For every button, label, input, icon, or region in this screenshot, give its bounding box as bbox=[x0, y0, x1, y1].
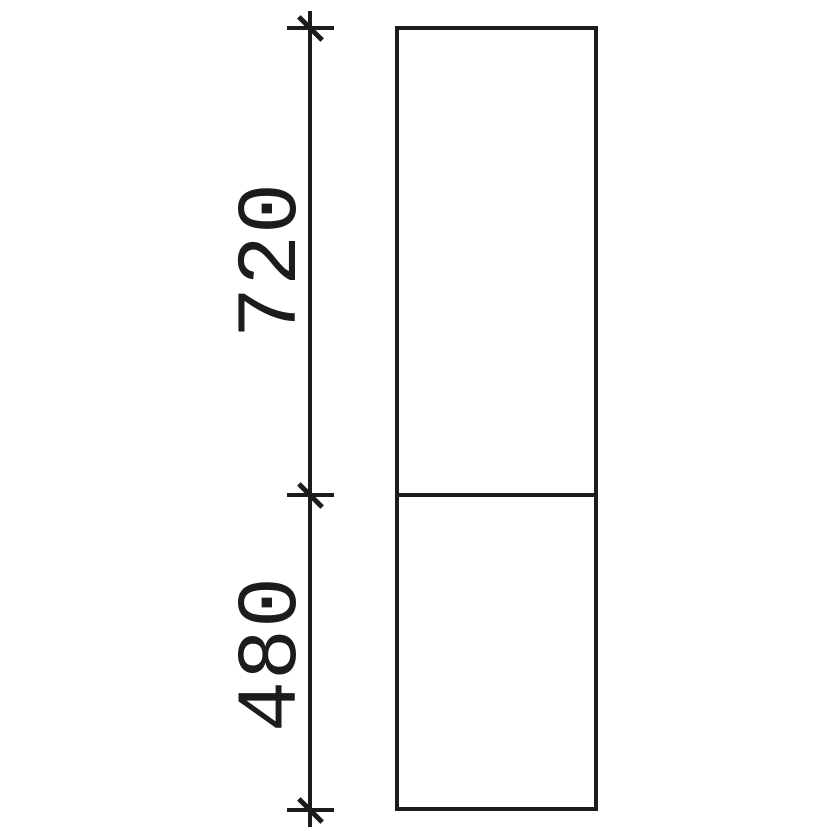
panel-divider-line bbox=[395, 493, 598, 497]
cabinet-outline bbox=[395, 26, 598, 811]
dimension-drawing: 720 480 bbox=[0, 0, 836, 836]
dimension-label-upper: 720 bbox=[227, 140, 317, 380]
dimension-label-lower: 480 bbox=[227, 534, 317, 774]
